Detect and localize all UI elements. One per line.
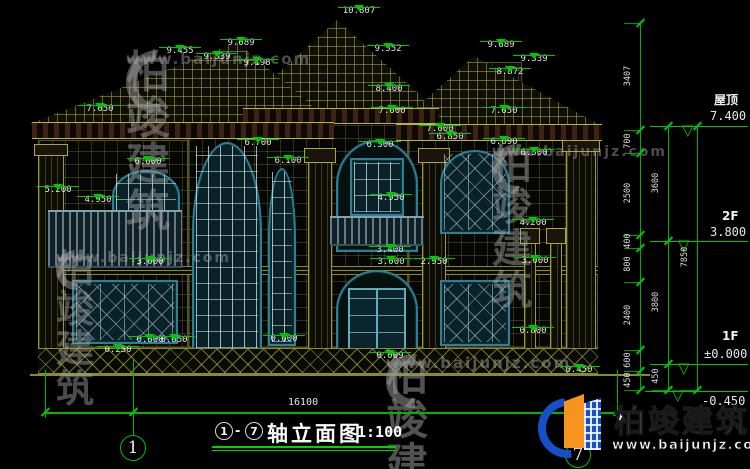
level-label: 1F: [722, 329, 739, 343]
drawing-title: 轴立面图: [267, 418, 363, 448]
level-value: 3.800: [710, 225, 746, 239]
title-axis-end-circle: 7: [245, 422, 263, 440]
level-value: ±0.000: [704, 347, 747, 361]
level-value: 7.400: [710, 109, 746, 123]
logo-building-blue-icon: [584, 398, 601, 450]
title-underline: [212, 446, 396, 448]
chain-dimension: 450: [623, 360, 633, 400]
dimension-chain: [640, 23, 641, 390]
site-logo: [538, 390, 614, 466]
chain-dimension: 700: [623, 121, 633, 161]
chain-dimension: 450: [651, 356, 661, 396]
chain-dimension: 2400: [623, 295, 633, 335]
drawing-scale: 1:100: [357, 423, 402, 441]
logo-url: www.baijunjz.com: [612, 438, 750, 453]
dimension-chain: [697, 126, 698, 390]
chain-tick: [693, 385, 702, 394]
chain-dimension: 800: [623, 244, 633, 284]
dimension-chain: [668, 126, 669, 390]
chain-dimension: 7850: [680, 237, 690, 277]
title-underline: [212, 450, 396, 451]
chain-tick: [636, 385, 645, 394]
chain-dimension: 3600: [651, 163, 661, 203]
axis-bubble-1: 1: [120, 435, 146, 461]
chain-dimension: 3800: [651, 282, 661, 322]
logo-building-orange-icon: [564, 394, 584, 448]
title-axis-start-circle: 1: [215, 422, 233, 440]
title-dash: -: [235, 424, 240, 439]
cad-elevation-drawing: 16100 1 7 1 - 7 轴立面图 1:100 柏竣建筑 www.baij…: [0, 0, 750, 469]
level-label: 屋顶: [714, 91, 738, 108]
level-marker-icon: ▽: [678, 361, 690, 376]
chain-dimension: 2500: [623, 173, 633, 213]
total-dimension: 16100: [288, 397, 318, 408]
logo-brand: 柏竣建筑: [614, 396, 750, 441]
level-marker-icon: ▽: [682, 123, 694, 138]
chain-dimension: 3407: [623, 56, 633, 96]
level-label: 2F: [722, 209, 739, 223]
